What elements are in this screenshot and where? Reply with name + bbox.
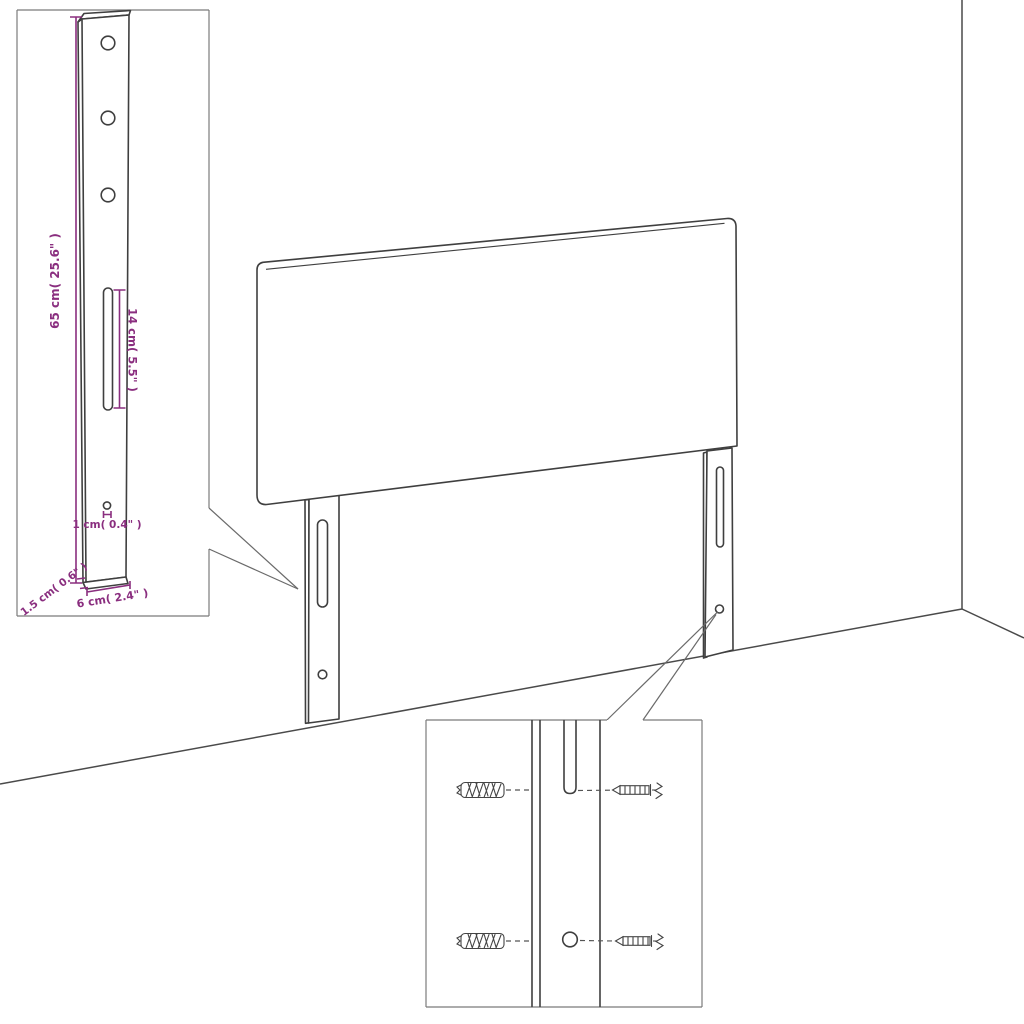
- leader-right-outer: [607, 612, 718, 720]
- leader-right-inner: [643, 615, 716, 721]
- leader-lines-right: [607, 612, 718, 720]
- left-leg-slot: [318, 520, 328, 607]
- bracket-detail-inset: 65 cm( 25.6" ) 14 cm( 5.5" ) 1 cm( 0.4" …: [17, 10, 209, 619]
- floor-line-right: [962, 609, 1024, 638]
- screw-detail-inset: [426, 720, 702, 1007]
- bracket-drawing: [78, 11, 131, 590]
- bracket-slot: [104, 288, 113, 410]
- leader-left-lower: [209, 549, 298, 589]
- left-leg: [305, 495, 339, 723]
- headboard-dimension-diagram: 65 cm( 25.6" ) 14 cm( 5.5" ) 1 cm( 0.4" …: [0, 0, 1024, 1024]
- leader-left-upper: [209, 508, 298, 589]
- headboard-panel: [257, 218, 737, 504]
- label-bottom-hole-offset: 1 cm( 0.4" ): [72, 519, 141, 531]
- headboard-front-face: [257, 218, 737, 504]
- leader-lines-left: [209, 508, 298, 589]
- label-bracket-height: 65 cm( 25.6" ): [48, 233, 62, 329]
- right-leg-slot: [717, 467, 724, 547]
- label-slot-length: 14 cm( 5.5" ): [126, 308, 140, 392]
- diagram-stage: 65 cm( 25.6" ) 14 cm( 5.5" ) 1 cm( 0.4" …: [0, 0, 1024, 1024]
